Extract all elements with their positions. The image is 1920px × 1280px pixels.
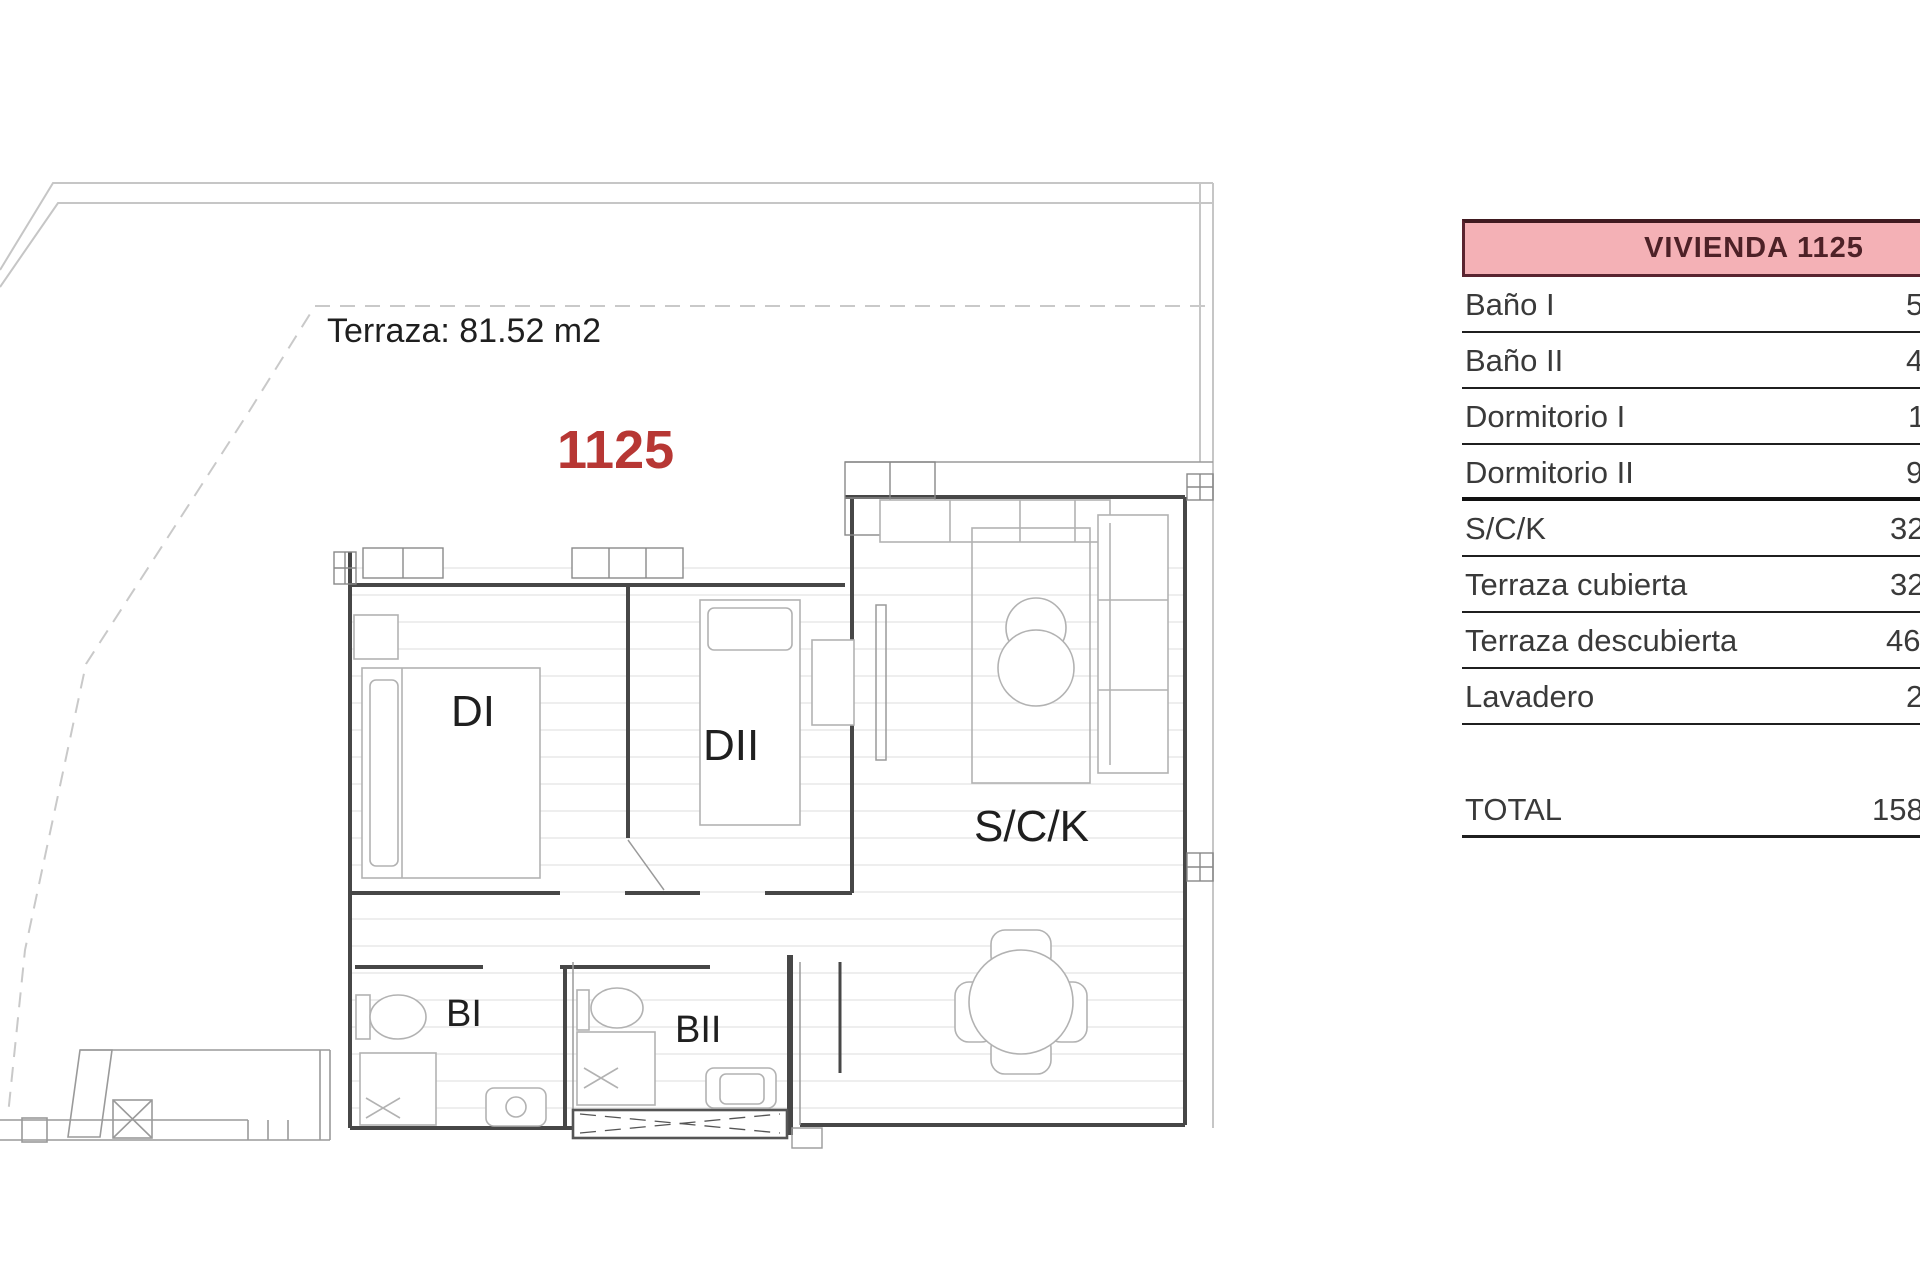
floorplan-page: { "plan": { "terrace_area_label": "Terra…	[0, 0, 1920, 1280]
row-label: Baño I	[1465, 277, 1555, 333]
table-row: Terraza descubierta 46	[1462, 613, 1920, 669]
row-label: Terraza cubierta	[1465, 557, 1687, 613]
row-value: 2	[1906, 669, 1920, 725]
table-row: Lavadero 2	[1462, 669, 1920, 725]
sofa	[1098, 515, 1168, 773]
table-row: Dormitorio II 9	[1462, 445, 1920, 501]
armchair	[998, 598, 1074, 706]
row-label: Dormitorio II	[1465, 445, 1634, 501]
row-value: 1	[1908, 389, 1920, 445]
row-value: 4	[1906, 333, 1920, 389]
room-label-bi: BI	[446, 993, 482, 1035]
row-label: Lavadero	[1465, 669, 1594, 725]
row-label: Dormitorio I	[1465, 389, 1625, 445]
row-label: Terraza descubierta	[1465, 613, 1737, 669]
room-label-di: DI	[451, 687, 495, 736]
row-value: 32	[1890, 557, 1920, 613]
table-row: Terraza cubierta 32	[1462, 557, 1920, 613]
unit-number-label: 1125	[557, 420, 674, 480]
terrace-area-label: Terraza: 81.52 m2	[327, 312, 601, 350]
table-header: VIVIENDA 1125	[1462, 219, 1920, 277]
kitchen-counter	[880, 500, 1110, 542]
total-label: TOTAL	[1465, 785, 1562, 835]
row-value: 46	[1886, 613, 1920, 669]
row-label: Baño II	[1465, 333, 1563, 389]
row-label: S/C/K	[1465, 501, 1546, 557]
room-label-dii: DII	[703, 721, 759, 770]
row-value: 32	[1890, 501, 1920, 557]
table-total-row: TOTAL 158	[1462, 785, 1920, 838]
bottom-left-structure	[0, 1050, 330, 1142]
room-label-sck: S/C/K	[974, 802, 1089, 851]
table-row: S/C/K 32	[1462, 501, 1920, 557]
area-table: VIVIENDA 1125 Baño I 5 Baño II 4 Dormito…	[1462, 219, 1920, 277]
row-value: 9	[1906, 445, 1920, 501]
room-label-bii: BII	[675, 1009, 721, 1051]
total-value: 158	[1872, 785, 1920, 835]
table-rows: Baño I 5 Baño II 4 Dormitorio I 1 Dormit…	[1462, 277, 1920, 725]
table-row: Baño II 4	[1462, 333, 1920, 389]
table-row: Baño I 5	[1462, 277, 1920, 333]
table-header-title: VIVIENDA 1125	[1644, 232, 1864, 265]
row-value: 5	[1906, 277, 1920, 333]
table-row: Dormitorio I 1	[1462, 389, 1920, 445]
